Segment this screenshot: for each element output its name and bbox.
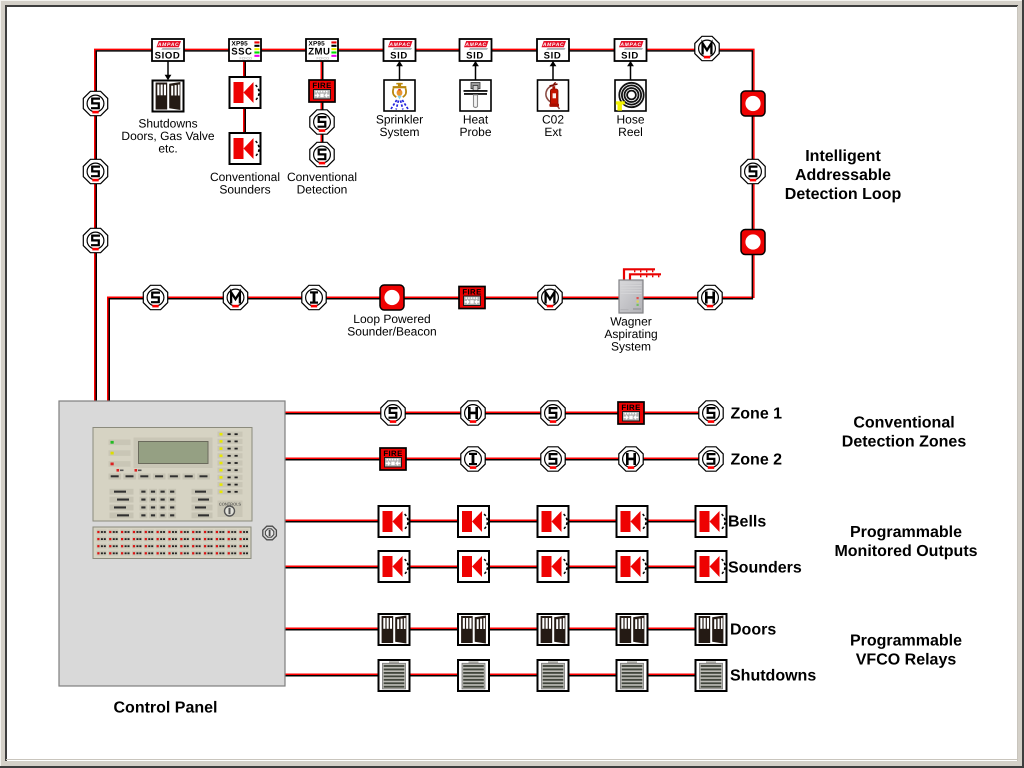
svg-text:Programmable: Programmable bbox=[850, 632, 962, 649]
svg-text:SIOD: SIOD bbox=[155, 51, 181, 62]
svg-text:Sounder/Beacon: Sounder/Beacon bbox=[347, 324, 436, 338]
svg-text:Programmable: Programmable bbox=[850, 524, 962, 541]
svg-text:Sounders: Sounders bbox=[728, 560, 802, 577]
svg-text:SID: SID bbox=[621, 51, 639, 62]
svg-text:Conventional: Conventional bbox=[853, 415, 954, 432]
svg-text:FIRE: FIRE bbox=[462, 288, 481, 297]
svg-text:AMPAC: AMPAC bbox=[464, 42, 486, 48]
svg-text:FIRE: FIRE bbox=[621, 403, 640, 412]
svg-text:FCFCO: FCFCO bbox=[240, 56, 253, 60]
svg-text:SID: SID bbox=[544, 51, 562, 62]
svg-text:System: System bbox=[611, 339, 651, 353]
svg-text:FIRE: FIRE bbox=[383, 449, 402, 458]
svg-text:FIRE: FIRE bbox=[312, 81, 331, 90]
svg-text:Control Panel: Control Panel bbox=[113, 700, 217, 717]
svg-text:Zone 1: Zone 1 bbox=[731, 406, 783, 423]
svg-text:SID: SID bbox=[390, 51, 408, 62]
svg-text:Detection Loop: Detection Loop bbox=[785, 186, 902, 203]
svg-text:VFCO Relays: VFCO Relays bbox=[856, 651, 957, 668]
svg-text:Detection Zones: Detection Zones bbox=[842, 434, 967, 451]
svg-text:Reel: Reel bbox=[618, 125, 643, 139]
svg-text:Sounders: Sounders bbox=[219, 182, 270, 196]
svg-text:Bells: Bells bbox=[728, 514, 766, 531]
svg-text:AMPAC: AMPAC bbox=[619, 42, 641, 48]
svg-text:etc.: etc. bbox=[158, 141, 177, 155]
svg-text:SID: SID bbox=[466, 51, 484, 62]
svg-text:Intelligent: Intelligent bbox=[805, 148, 881, 165]
svg-text:System: System bbox=[379, 125, 419, 139]
svg-text:Probe: Probe bbox=[459, 125, 491, 139]
svg-text:Ext: Ext bbox=[544, 125, 562, 139]
svg-text:Shutdowns: Shutdowns bbox=[730, 668, 816, 685]
svg-text:AMPAC: AMPAC bbox=[542, 42, 564, 48]
svg-text:FCFCO: FCFCO bbox=[317, 56, 330, 60]
svg-text:Addressable: Addressable bbox=[795, 167, 891, 184]
svg-text:Detection: Detection bbox=[297, 182, 348, 196]
svg-text:Zone 2: Zone 2 bbox=[731, 452, 783, 469]
svg-text:AMPAC: AMPAC bbox=[388, 42, 410, 48]
svg-text:Doors: Doors bbox=[730, 622, 776, 639]
svg-text:Monitored Outputs: Monitored Outputs bbox=[834, 543, 977, 560]
svg-text:AMPAC: AMPAC bbox=[157, 42, 179, 48]
